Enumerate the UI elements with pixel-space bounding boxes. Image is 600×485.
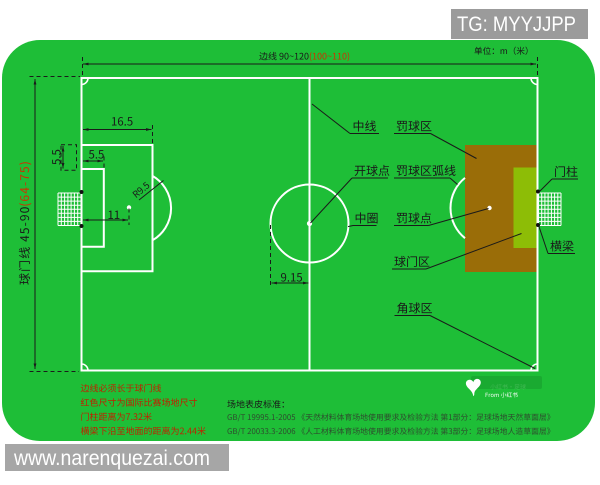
svg-text:www.narenquezai.com: www.narenquezai.com (13, 447, 210, 470)
svg-text:TG: MYYJJPP: TG: MYYJJPP (457, 13, 576, 36)
